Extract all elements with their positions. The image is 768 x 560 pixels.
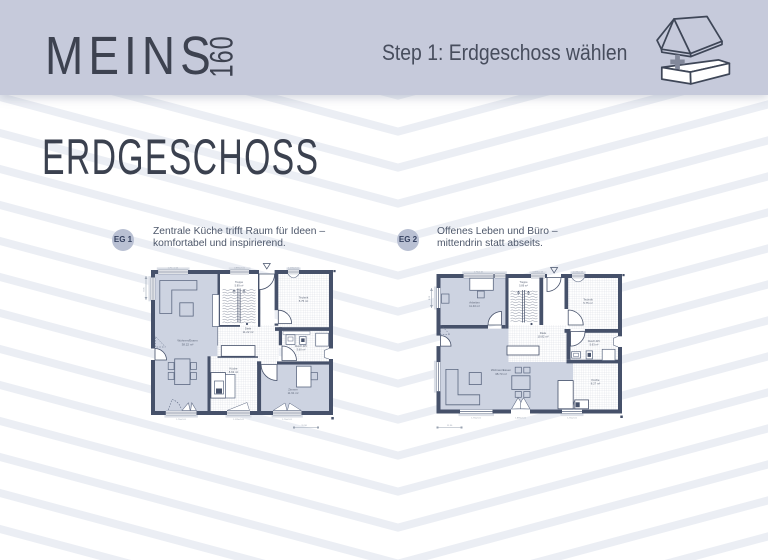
- svg-text:8.05: 8.05: [144, 287, 146, 292]
- svg-text:1.76x2.01: 1.76x2.01: [282, 419, 292, 421]
- svg-text:8.27 m²: 8.27 m²: [591, 382, 601, 386]
- svg-text:1.76x2.01: 1.76x2.01: [176, 419, 186, 421]
- svg-text:Treppe: Treppe: [235, 280, 244, 284]
- svg-text:11.22 m²: 11.22 m²: [243, 330, 254, 334]
- svg-text:11.40 m²: 11.40 m²: [469, 304, 480, 308]
- svg-text:5.63 m²: 5.63 m²: [590, 342, 599, 346]
- svg-text:1.76x2.01: 1.76x2.01: [567, 417, 577, 419]
- svg-text:8.05: 8.05: [429, 295, 431, 300]
- svg-text:Dusch-WC: Dusch-WC: [588, 339, 601, 343]
- svg-text:11.58: 11.58: [301, 425, 307, 427]
- svg-text:11.30: 11.30: [447, 425, 453, 427]
- svg-text:Treppe: Treppe: [519, 280, 528, 284]
- svg-text:0.885x2.01: 0.885x2.01: [533, 272, 545, 274]
- svg-text:1.76x2.01: 1.76x2.01: [474, 272, 484, 274]
- svg-text:5.75 m²: 5.75 m²: [583, 301, 593, 305]
- svg-text:38.22 m²: 38.22 m²: [182, 342, 194, 346]
- svg-text:5.89 m²: 5.89 m²: [235, 283, 244, 287]
- svg-text:1.135x2.01: 1.135x2.01: [573, 272, 585, 274]
- svg-text:3.60 m²: 3.60 m²: [297, 347, 306, 351]
- svg-text:Dusch-WC: Dusch-WC: [295, 344, 308, 348]
- svg-text:5.89 m²: 5.89 m²: [519, 283, 528, 287]
- svg-text:1.885x2.01: 1.885x2.01: [515, 417, 527, 419]
- svg-text:1.76 x 2.01: 1.76 x 2.01: [168, 268, 180, 270]
- svg-text:5.75 m²: 5.75 m²: [299, 299, 309, 303]
- svg-text:11.91 m²: 11.91 m²: [288, 391, 299, 395]
- svg-text:1.76x2.01: 1.76x2.01: [471, 417, 481, 419]
- svg-text:38.73 m²: 38.73 m²: [495, 372, 507, 376]
- svg-text:10.82 m²: 10.82 m²: [537, 335, 548, 339]
- svg-text:1.135x2.01: 1.135x2.01: [288, 268, 300, 270]
- svg-text:0.885x2.01: 0.885x2.01: [234, 268, 246, 270]
- svg-text:8.63 m²: 8.63 m²: [229, 370, 239, 374]
- svg-text:1.135x2.01: 1.135x2.01: [233, 419, 245, 421]
